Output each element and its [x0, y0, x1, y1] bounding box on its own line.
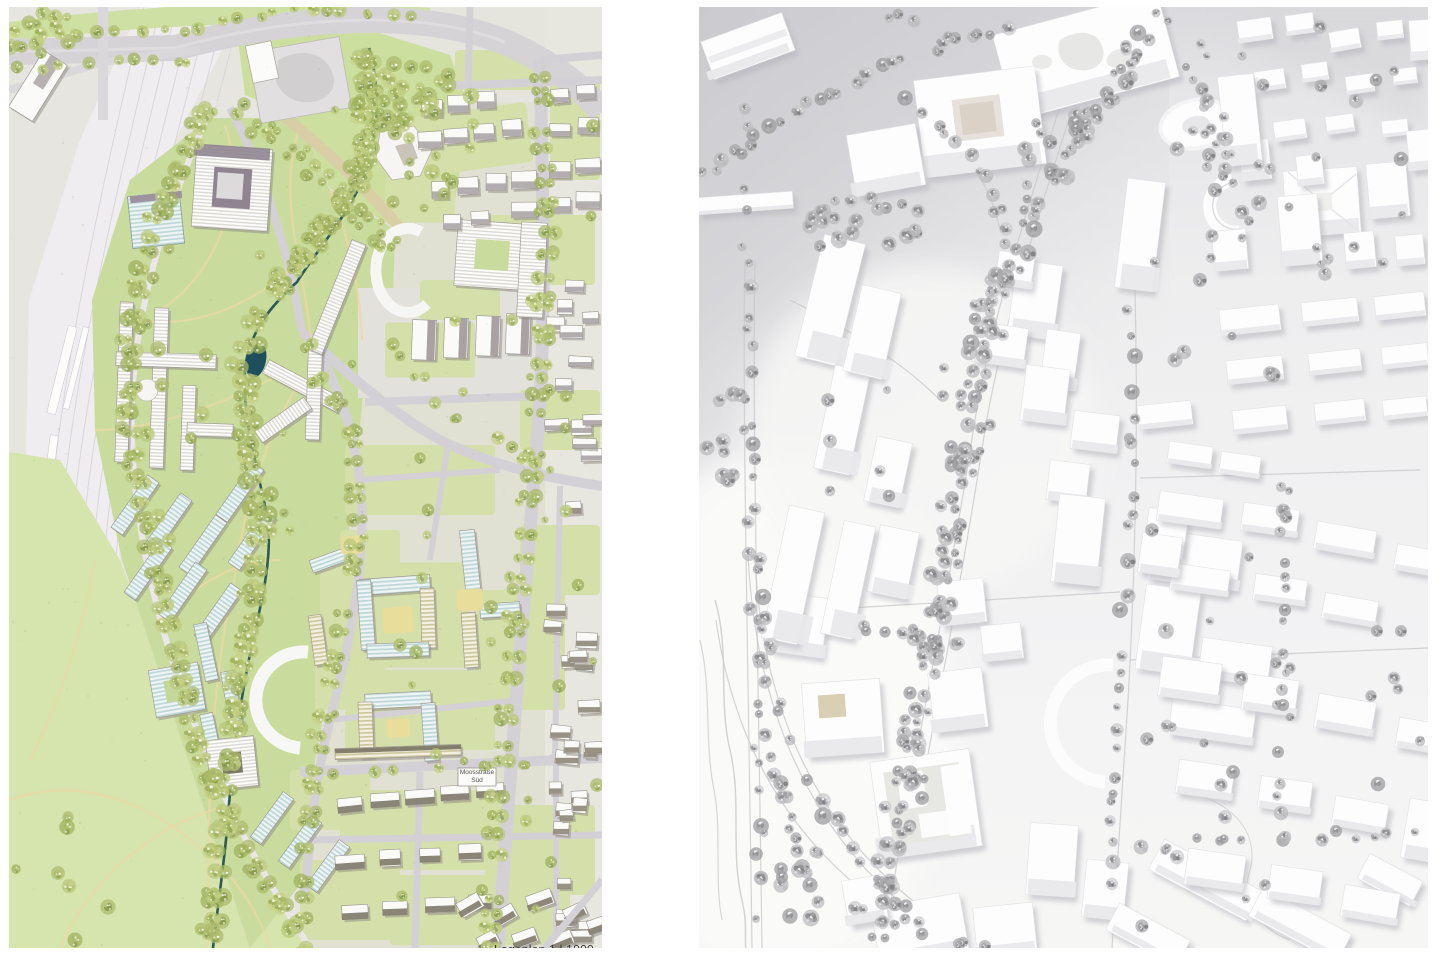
- svg-text:Moosstraße: Moosstraße: [460, 769, 495, 776]
- svg-text:Lageplan 1 | 1000: Lageplan 1 | 1000: [494, 943, 594, 957]
- svg-text:Süd: Süd: [471, 777, 483, 784]
